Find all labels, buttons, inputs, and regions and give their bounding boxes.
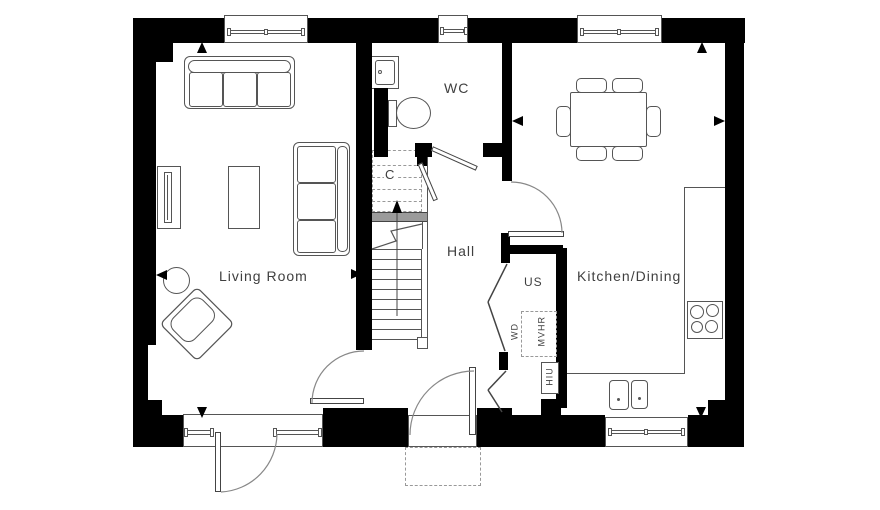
- us-bifold-door-leaf: [488, 264, 507, 302]
- window-glazing-cap: [655, 28, 659, 36]
- window-glazing-cap: [318, 428, 322, 437]
- french-door-leaf: [215, 432, 221, 492]
- wall-kitchen-west: [502, 43, 512, 181]
- wall: [725, 43, 744, 447]
- armchair: [160, 287, 234, 361]
- sofa-small-seat-cushion: [297, 220, 336, 253]
- room-label-wc: WC: [444, 81, 469, 95]
- sink-drain: [617, 398, 620, 401]
- dining-chair: [556, 106, 571, 137]
- window-glazing-cap: [264, 29, 268, 35]
- dining-table: [570, 92, 647, 147]
- sofa-large-seat-cushion: [223, 72, 257, 107]
- wall-marker-up-icon: [697, 42, 707, 53]
- window-glazing-cap: [580, 28, 584, 36]
- wall: [156, 415, 183, 447]
- sofa-large-seat-cushion: [257, 72, 291, 107]
- kitchen-counter-edge-bottom: [567, 373, 684, 374]
- wall: [133, 43, 173, 62]
- wc-basin-drain: [378, 70, 382, 74]
- stair-break-band: [372, 212, 427, 222]
- french-door-glazing-bar: [185, 430, 213, 435]
- wall: [499, 352, 508, 370]
- wall: [415, 143, 432, 157]
- understairs-dashed-tread: [372, 165, 422, 166]
- dining-chair: [576, 146, 607, 161]
- wall: [477, 415, 605, 447]
- living-room-door-swing-arc: [312, 351, 364, 403]
- understairs-dashed-tread: [372, 189, 422, 190]
- window-glazing-cap: [608, 428, 612, 436]
- window-glazing-cap: [681, 428, 685, 436]
- sofa-small-seat-cushion: [297, 146, 336, 183]
- window-glazing-cap: [273, 428, 277, 437]
- sofa-small-back-cushion: [337, 146, 348, 252]
- tv-screen: [164, 172, 172, 223]
- us-bifold-door-leaf: [488, 302, 505, 351]
- stair-treads: [372, 249, 422, 340]
- understairs-dashed-tread: [372, 201, 422, 202]
- window-glazing-cap: [210, 428, 214, 437]
- front-door-opening: [408, 415, 477, 447]
- coffee-table: [228, 166, 260, 229]
- appliance-label-hiu: HIU: [546, 362, 555, 392]
- tv-screen-line: [167, 175, 168, 220]
- kitchen-door-leaf: [508, 231, 564, 237]
- room-label-cupboard: C: [384, 168, 396, 181]
- wall: [477, 408, 512, 415]
- window-glazing-cap: [227, 28, 231, 36]
- hob-ring: [690, 305, 704, 319]
- wall-notch: [148, 345, 156, 400]
- appliance-label-mvhr: MVHR: [538, 317, 547, 347]
- dining-chair: [612, 78, 643, 93]
- porch-canopy-outline: [405, 447, 481, 486]
- hob-ring: [691, 321, 703, 333]
- sofa-small-seat-cushion: [297, 183, 336, 220]
- stair-break-zigzag: [372, 224, 422, 249]
- understairs-cupboard-outline: [372, 150, 422, 212]
- french-door-glazing-bar: [275, 430, 322, 435]
- window-glazing-cap: [184, 428, 188, 437]
- window-glazing-cap: [644, 429, 648, 435]
- window-glazing-cap: [440, 27, 444, 35]
- room-label-hall: Hall: [447, 244, 475, 258]
- hob-ring: [706, 304, 719, 317]
- appliance-label-wd: WD: [511, 317, 520, 347]
- stair-newel-post: [417, 337, 428, 349]
- room-label-kitchen-dining: Kitchen/Dining: [577, 269, 681, 283]
- wall: [708, 400, 725, 415]
- hob-ring: [705, 320, 718, 333]
- window-glazing-cap: [464, 27, 468, 35]
- side-table: [163, 267, 190, 294]
- wall: [501, 233, 510, 263]
- dining-chair: [646, 106, 661, 137]
- toilet-bowl: [396, 97, 431, 129]
- kitchen-sink-bowl: [631, 380, 648, 409]
- wc-door-leaf: [431, 146, 478, 170]
- dining-chair: [576, 78, 607, 93]
- kitchen-counter-edge-vertical: [684, 187, 685, 374]
- kitchen-sink-bowl: [609, 380, 629, 410]
- toilet-cistern: [388, 100, 397, 127]
- understairs-dashed-tread: [372, 177, 422, 178]
- sofa-large-seat-cushion: [189, 72, 223, 107]
- room-label-utility-store: US: [524, 276, 543, 288]
- wall: [374, 88, 388, 157]
- wall-living-stair-divider: [356, 43, 372, 350]
- wall: [688, 415, 743, 447]
- sink-drain: [638, 397, 641, 400]
- us-bifold-door-leaf: [488, 371, 506, 390]
- wall-marker-up-icon: [197, 42, 207, 53]
- living-room-door-leaf: [310, 398, 364, 404]
- wall-marker-left-icon: [512, 116, 523, 126]
- wall-marker-right-icon: [714, 116, 725, 126]
- window-glazing-cap: [301, 28, 305, 36]
- dining-chair: [612, 146, 643, 161]
- stair-stringer-line: [422, 222, 423, 249]
- kitchen-counter-edge-top: [684, 187, 725, 188]
- wall: [323, 408, 408, 447]
- wall-us-north: [507, 245, 563, 254]
- window-glazing-cap: [617, 29, 621, 35]
- window-glazing-bar: [442, 29, 464, 33]
- kitchen-door-swing-arc: [511, 182, 562, 233]
- front-door-leaf: [469, 367, 476, 435]
- room-label-living-room: Living Room: [219, 269, 308, 283]
- floor-plan: Living Room Hall WC Kitchen/Dining C US …: [0, 0, 880, 510]
